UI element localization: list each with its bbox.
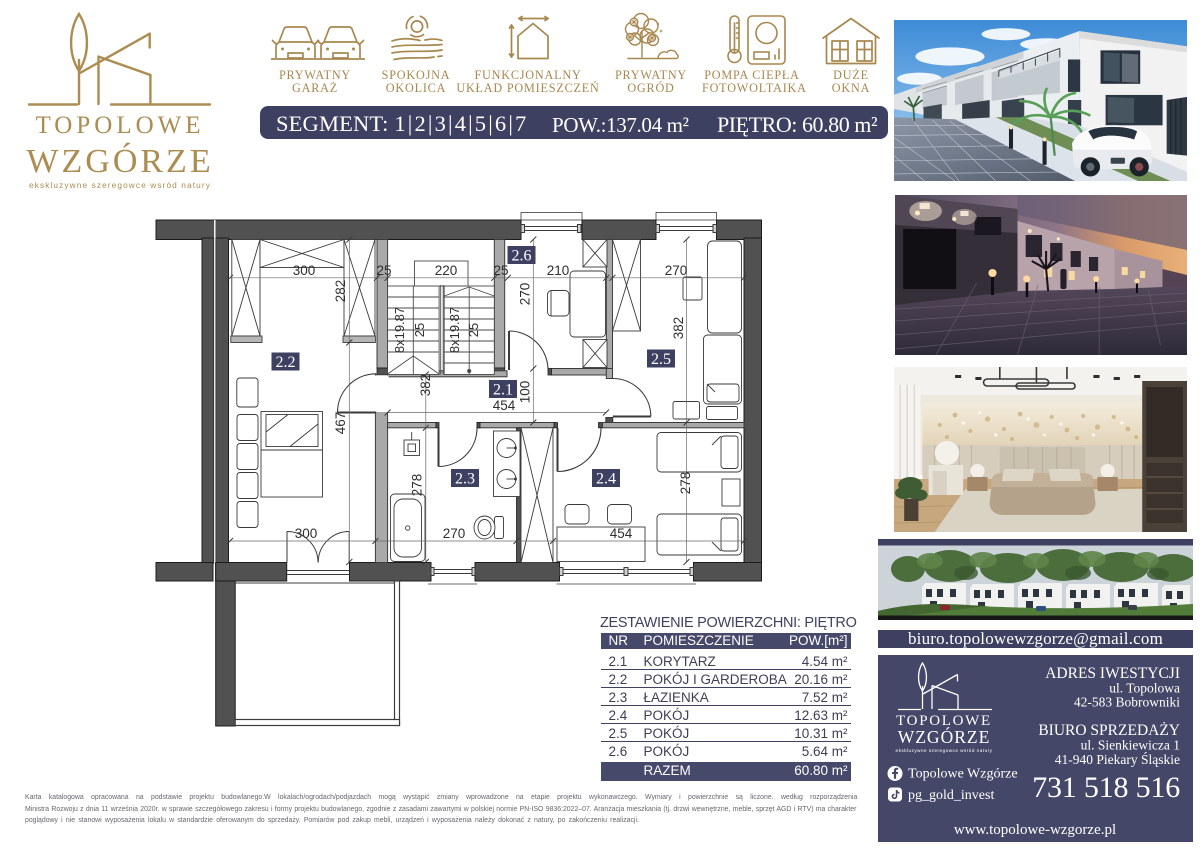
svg-text:2.4: 2.4 <box>596 471 616 488</box>
svg-text:382: 382 <box>418 374 433 397</box>
svg-text:731 518 516: 731 518 516 <box>1032 771 1180 804</box>
svg-text:270: 270 <box>665 263 688 278</box>
svg-text:42-583 Bobrowniki: 42-583 Bobrowniki <box>1074 695 1180 710</box>
svg-text:100: 100 <box>518 381 533 404</box>
svg-text:25: 25 <box>466 323 481 337</box>
svg-text:2.6: 2.6 <box>512 248 532 265</box>
svg-text:467: 467 <box>333 412 348 435</box>
svg-text:8x19.87: 8x19.87 <box>392 307 407 353</box>
svg-text:2.3: 2.3 <box>455 471 475 488</box>
svg-text:Topolowe Wzgórze: Topolowe Wzgórze <box>908 767 1018 782</box>
svg-text:2.1: 2.1 <box>493 382 513 399</box>
svg-text:25: 25 <box>412 323 427 337</box>
svg-text:270: 270 <box>443 526 466 541</box>
svg-text:www.topolowe-wzgorze.pl: www.topolowe-wzgorze.pl <box>954 822 1116 838</box>
svg-text:pg_gold_invest: pg_gold_invest <box>908 788 994 803</box>
svg-text:210: 210 <box>547 263 570 278</box>
svg-text:ekskluzywne szeregowce wsród n: ekskluzywne szeregowce wsród natury <box>896 748 993 753</box>
svg-text:278: 278 <box>678 472 693 495</box>
svg-text:ul. Topolowa: ul. Topolowa <box>1109 681 1180 696</box>
svg-text:454: 454 <box>610 526 633 541</box>
svg-text:WZGÓRZE: WZGÓRZE <box>898 727 991 747</box>
svg-text:270: 270 <box>518 283 533 306</box>
svg-text:41-940 Piekary Śląskie: 41-940 Piekary Śląskie <box>1055 752 1180 767</box>
svg-text:282: 282 <box>333 280 348 303</box>
svg-text:278: 278 <box>410 474 425 497</box>
svg-text:382: 382 <box>671 317 686 340</box>
svg-text:BIURO SPRZEDAŻY: BIURO SPRZEDAŻY <box>1038 722 1180 739</box>
svg-text:25: 25 <box>376 263 391 278</box>
svg-text:220: 220 <box>435 263 458 278</box>
svg-text:25: 25 <box>493 263 508 278</box>
svg-text:300: 300 <box>293 263 316 278</box>
svg-text:2.2: 2.2 <box>276 354 296 371</box>
svg-text:300: 300 <box>295 526 318 541</box>
svg-text:ul. Sienkiewicza 1: ul. Sienkiewicza 1 <box>1081 738 1180 753</box>
svg-text:ADRES IWESTYCJI: ADRES IWESTYCJI <box>1045 665 1180 682</box>
svg-text:8x19.87: 8x19.87 <box>447 307 462 353</box>
svg-text:454: 454 <box>493 398 516 413</box>
svg-text:2.5: 2.5 <box>651 351 671 368</box>
